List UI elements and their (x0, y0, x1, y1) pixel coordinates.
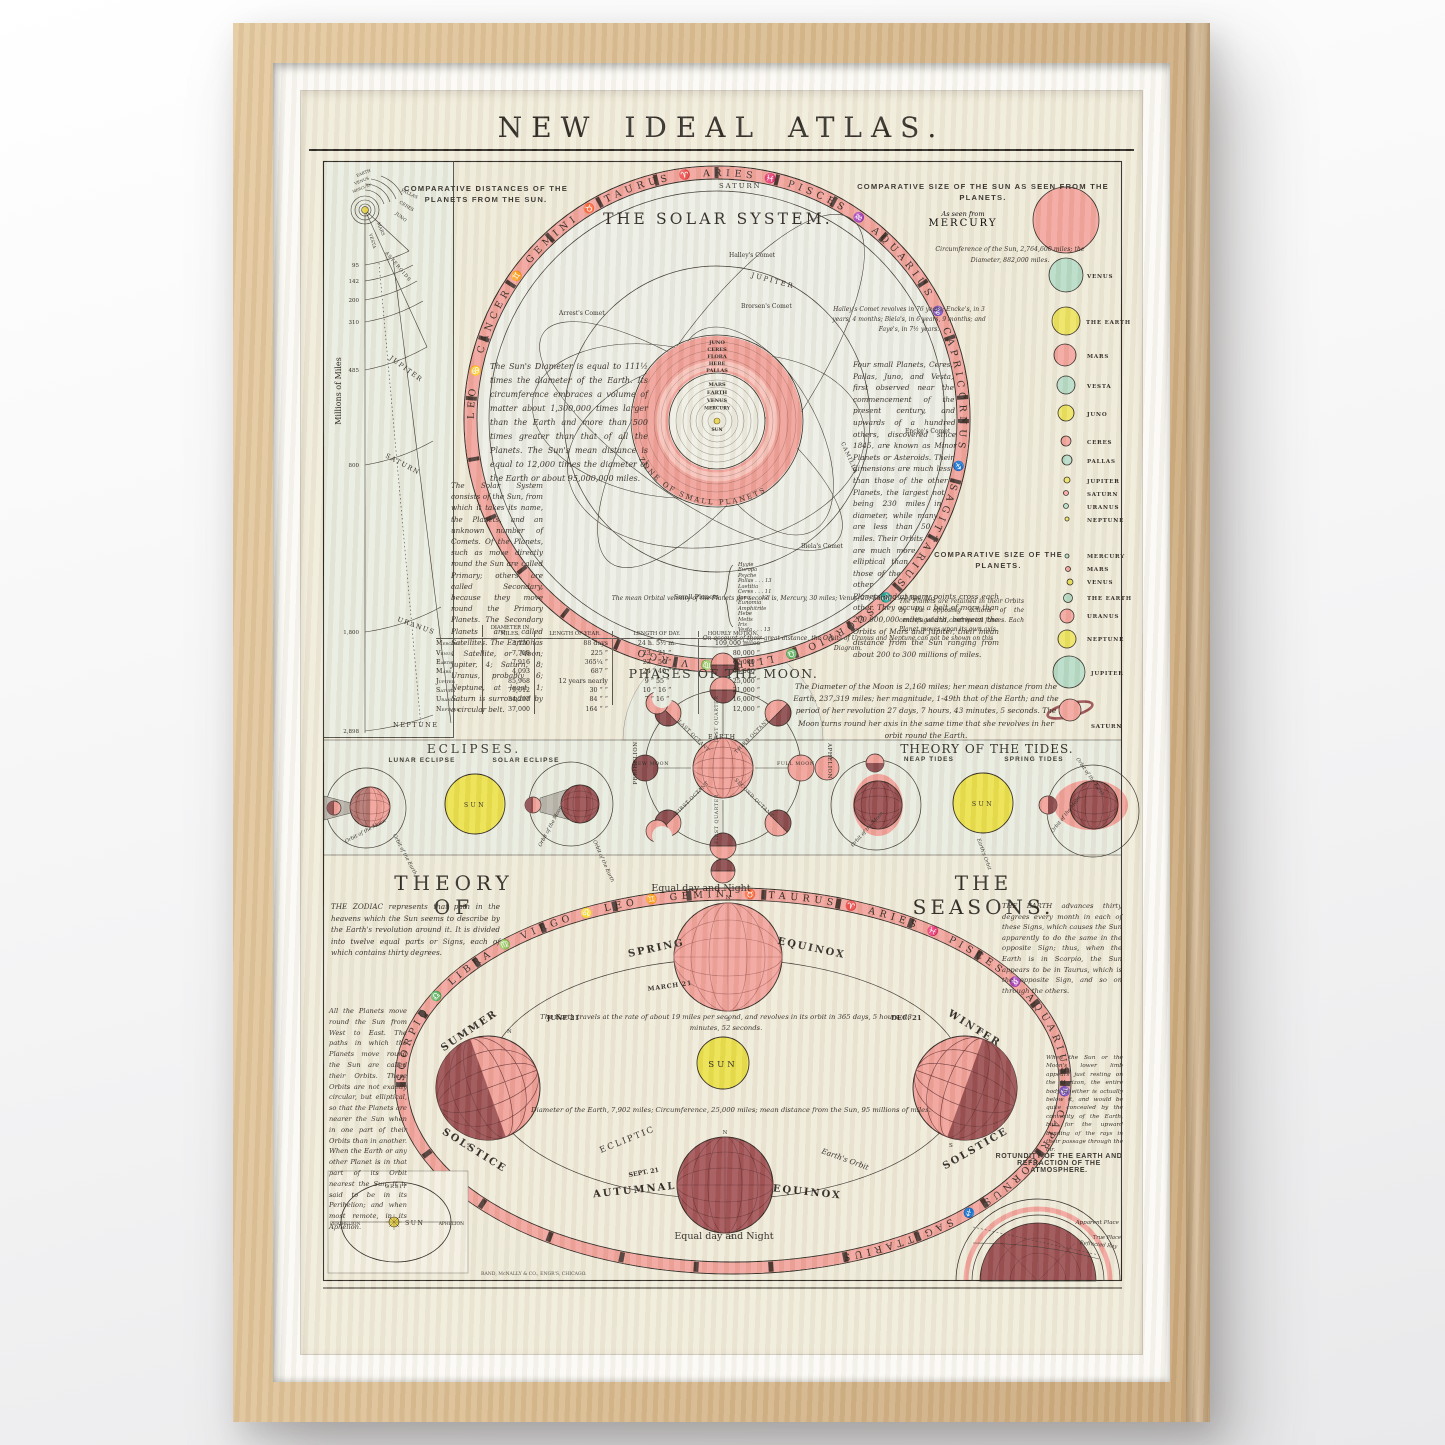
lunar-eclipse-label: LUNAR ECLIPSE (372, 757, 472, 764)
planet-sizes-heading: COMPARATIVE SIZE OF THE PLANETS. (931, 550, 1066, 571)
svg-text:THE EARTH: THE EARTH (1086, 320, 1131, 326)
spring-tides-label: SPRING TIDES (984, 756, 1084, 763)
svg-text:EARTH: EARTH (708, 734, 736, 741)
svg-text:MERCURY: MERCURY (704, 407, 731, 412)
sun-circumference-note: Circumference of the Sun, 2,764,600 mile… (934, 244, 1086, 266)
svg-text:MARS: MARS (708, 382, 726, 388)
planets-retained-text: The Planets are retained in their Orbits… (899, 597, 1024, 635)
svg-text:CERES: CERES (1087, 440, 1112, 446)
refraction-text: When the Sun or the Moon's lower limb ap… (1046, 1054, 1123, 1155)
svg-text:APHELION: APHELION (826, 742, 832, 779)
table-row: Neptune 37,000 164 “ “ 12,000 “ (436, 705, 764, 714)
svg-text:800: 800 (349, 463, 360, 469)
svg-text:HEBE: HEBE (709, 361, 726, 367)
svg-text:310: 310 (349, 320, 360, 326)
comet-note: Halley's Comet revolves in 76 years; Enc… (828, 305, 990, 336)
svg-text:N: N (726, 895, 731, 901)
svg-text:200: 200 (349, 298, 360, 304)
svg-text:Arrest's Comet: Arrest's Comet (558, 310, 605, 317)
svg-text:NEPTUNE: NEPTUNE (393, 721, 439, 729)
earth-advances-text: THE EARTH advances thirty degrees every … (1002, 901, 1122, 996)
svg-text:MARS: MARS (1087, 567, 1109, 573)
eclipses-heading: ECLIPSES. (411, 742, 537, 756)
svg-text:MARS: MARS (1087, 354, 1109, 360)
svg-text:PERIHELION: PERIHELION (633, 741, 639, 784)
svg-text:VESTA: VESTA (1086, 384, 1112, 390)
svg-text:Brorsen's Comet: Brorsen's Comet (741, 303, 792, 310)
svg-text:N: N (507, 1029, 512, 1035)
small-planets-list: HygieEuropaPsychePallas . . . 13Laetitia… (738, 563, 772, 634)
svg-text:142: 142 (349, 279, 360, 285)
svg-text:VENUS: VENUS (1086, 274, 1113, 280)
svg-text:VENUS: VENUS (1086, 580, 1113, 586)
svg-text:Equal day and Night: Equal day and Night (651, 883, 750, 894)
tides-heading: THEORY OF THE TIDES. (889, 742, 1085, 756)
moon-text: The Diameter of the Moon is 2,160 miles;… (793, 681, 1059, 742)
svg-text:SUN: SUN (708, 1060, 737, 1070)
svg-text:URANUS: URANUS (1087, 614, 1119, 620)
earth-diameter-text: Diameter of the Earth, 7,902 miles; Circ… (531, 1105, 931, 1115)
svg-text:SUN: SUN (464, 802, 486, 809)
svg-text:URANUS: URANUS (1087, 505, 1119, 511)
svg-text:PALLAS: PALLAS (706, 368, 728, 374)
sun-text: The Sun's Diameter is equal to 111½ time… (490, 360, 648, 486)
svg-text:JUNO: JUNO (1086, 412, 1107, 418)
table-row: Uranus 34,297 84 “ “ 7 “ 16 “ 16,000 “ (436, 695, 764, 704)
sun-center (714, 418, 720, 424)
svg-text:SUN: SUN (972, 801, 994, 808)
as-seen-from-label: As seen from (913, 210, 1013, 218)
solar-eclipse-label: SOLAR ECLIPSE (476, 757, 576, 764)
svg-text:SATURN: SATURN (719, 182, 762, 190)
svg-text:NEPTUNE: NEPTUNE (1087, 518, 1124, 524)
distances-heading: COMPARATIVE DISTANCES OF THE PLANETS FRO… (386, 183, 586, 205)
svg-text:True Place: True Place (1093, 1235, 1121, 1241)
as-seen-from-planet: MERCURY (913, 218, 1013, 229)
svg-text:THE EARTH: THE EARTH (1087, 596, 1132, 602)
svg-text:EARTH: EARTH (707, 390, 727, 396)
distances-panel-bg (323, 161, 454, 738)
svg-text:Apparent Place: Apparent Place (1075, 1220, 1120, 1226)
rotundity-heading: ROTUNDITY OF THE EARTH AND REFRACTION OF… (989, 1153, 1129, 1174)
solar-system-heading: THE SOLAR SYSTEM. (603, 210, 833, 228)
sun-sizes-heading: COMPARATIVE SIZE OF THE SUN AS SEEN FROM… (853, 181, 1113, 203)
svg-text:NEPTUNE: NEPTUNE (1087, 637, 1124, 643)
svg-text:SATURN: SATURN (1091, 724, 1122, 730)
svg-text:FLORA: FLORA (707, 354, 727, 360)
svg-text:APHELION: APHELION (438, 1222, 464, 1227)
svg-text:PALLAS: PALLAS (1087, 459, 1116, 465)
svg-text:SUN: SUN (405, 1220, 424, 1227)
earth-travel-text: The Earth travels at the rate of about 1… (526, 1012, 926, 1034)
wood-frame: NEW IDEAL ATLAS. (233, 23, 1210, 1422)
planets-move-text: All the Planets move round the Sun from … (329, 1006, 407, 1233)
planet-table-header: DIAMETER IN MILES. LENGTH OF YEAR. LENGT… (436, 625, 764, 639)
white-mat: NEW IDEAL ATLAS. (273, 63, 1170, 1382)
product-photo-scene: NEW IDEAL ATLAS. (0, 0, 1445, 1445)
svg-text:SUN: SUN (711, 428, 722, 433)
svg-text:1,800: 1,800 (343, 630, 359, 636)
svg-text:2,898: 2,898 (343, 729, 359, 735)
table-row: Mercury 3,150 88 days 24 h. 5½ m. 109,00… (436, 639, 764, 648)
svg-text:VENUS: VENUS (706, 398, 728, 404)
svg-text:Halley's Comet: Halley's Comet (729, 252, 776, 259)
moon-phases-heading: PHASES OF THE MOON. (626, 666, 821, 681)
svg-text:MERCURY: MERCURY (1087, 554, 1125, 560)
neap-tides-label: NEAP TIDES (879, 756, 979, 763)
printer-imprint: RAND, McNALLY & CO., ENGR'S, CHICAGO. (481, 1272, 587, 1277)
svg-text:CERES: CERES (707, 347, 727, 353)
svg-text:485: 485 (349, 368, 360, 374)
svg-text:JUPITER: JUPITER (1086, 479, 1120, 485)
svg-text:FULL MOON: FULL MOON (777, 761, 815, 767)
svg-text:SATURN: SATURN (1087, 492, 1118, 498)
svg-text:Biela's Comet: Biela's Comet (801, 543, 843, 550)
svg-text:N: N (723, 1130, 728, 1136)
svg-text:S: S (949, 1143, 953, 1149)
table-row: Venus 7,718 225 “ 23 “ 21 “ 80,000 “ (436, 649, 764, 658)
axis-label: Millions of Miles (334, 357, 343, 425)
zodiac-text: THE ZODIAC represents that path in the h… (331, 901, 500, 959)
as-seen-from-block: As seen from MERCURY (913, 210, 1013, 229)
svg-text:JUNO: JUNO (708, 340, 725, 346)
svg-text:95: 95 (352, 263, 359, 269)
atlas-poster: NEW IDEAL ATLAS. (301, 91, 1142, 1354)
svg-text:JUPITER: JUPITER (1090, 671, 1124, 677)
svg-text:FIRST QUARTER: FIRST QUARTER (714, 794, 720, 844)
table-row: Saturn 79,012 30 “ “ 10 “ 16 “ 21,000 “ (436, 686, 764, 695)
svg-text:Equal day and Night: Equal day and Night (674, 1231, 773, 1242)
